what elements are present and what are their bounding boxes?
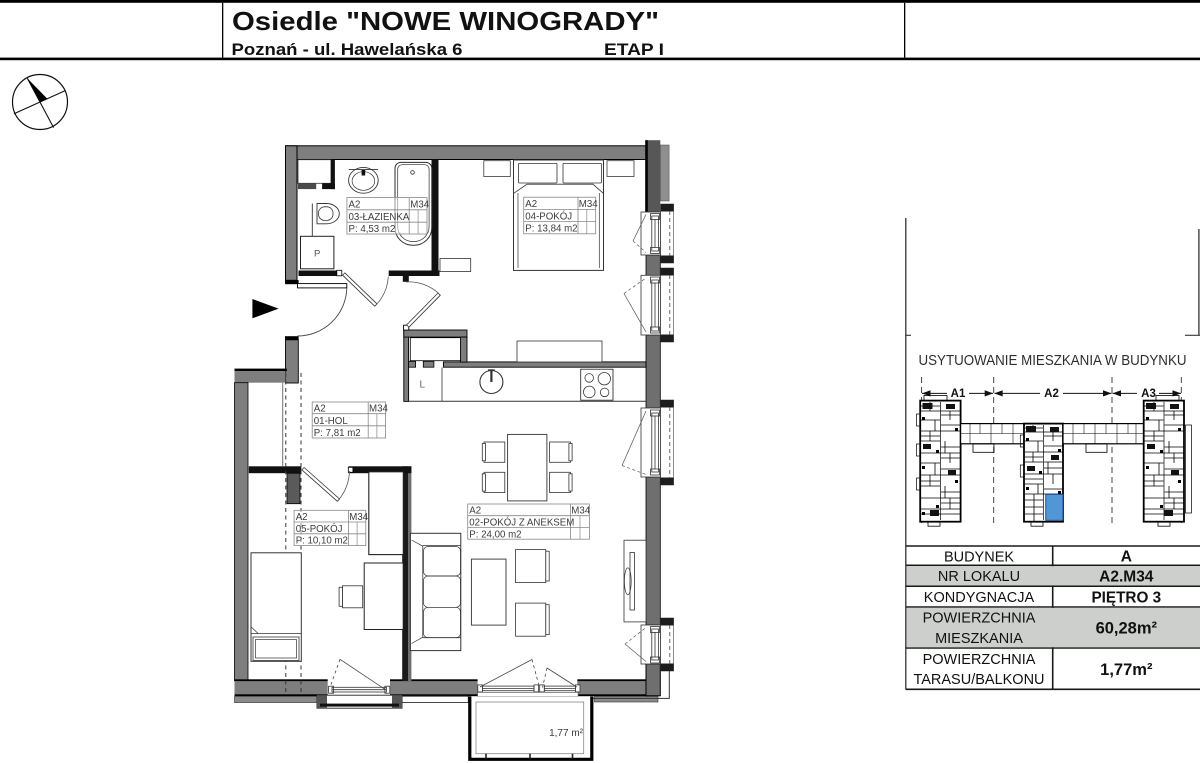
svg-text:M34: M34 <box>579 199 598 210</box>
svg-text:A: A <box>1121 549 1132 566</box>
svg-text:P: 24,00 m2: P: 24,00 m2 <box>469 529 521 540</box>
svg-text:03-ŁAZIENKA: 03-ŁAZIENKA <box>349 212 410 223</box>
svg-text:P: 4,53 m2: P: 4,53 m2 <box>349 224 396 235</box>
svg-text:A2: A2 <box>525 199 537 210</box>
svg-text:Poznań - ul. Hawelańska 6: Poznań - ul. Hawelańska 6 <box>232 40 463 59</box>
svg-text:02-POKÓJ Z ANEKSEM: 02-POKÓJ Z ANEKSEM <box>469 518 574 529</box>
svg-text:M34: M34 <box>410 200 429 211</box>
svg-text:M34: M34 <box>349 512 368 523</box>
svg-text:POWIERZCHNIA: POWIERZCHNIA <box>923 652 1036 668</box>
svg-text:60,28m²: 60,28m² <box>1096 620 1158 638</box>
svg-text:A2: A2 <box>296 512 308 523</box>
svg-text:1,77m²: 1,77m² <box>1100 661 1153 679</box>
svg-text:MIESZKANIA: MIESZKANIA <box>935 631 1023 647</box>
svg-text:P: P <box>314 249 320 260</box>
svg-text:A3: A3 <box>1141 388 1156 400</box>
svg-text:P: 13,84 m2: P: 13,84 m2 <box>525 224 577 235</box>
svg-text:USYTUOWANIE MIESZKANIA W BUDYN: USYTUOWANIE MIESZKANIA W BUDYNKU <box>919 352 1187 369</box>
svg-text:POWIERZCHNIA: POWIERZCHNIA <box>923 611 1036 627</box>
svg-text:A2: A2 <box>349 200 361 211</box>
svg-text:TARASU/BALKONU: TARASU/BALKONU <box>913 672 1044 688</box>
svg-text:NR LOKALU: NR LOKALU <box>938 569 1020 585</box>
svg-text:A2.M34: A2.M34 <box>1099 568 1154 585</box>
svg-text:A2: A2 <box>469 506 481 517</box>
svg-text:Osiedle "NOWE WINOGRADY": Osiedle "NOWE WINOGRADY" <box>232 6 659 36</box>
svg-text:KONDYGNACJA: KONDYGNACJA <box>924 590 1035 606</box>
svg-text:01-HOL: 01-HOL <box>314 416 349 427</box>
svg-text:1,77 m²: 1,77 m² <box>549 728 584 739</box>
svg-text:L: L <box>420 380 426 391</box>
svg-text:ETAP I: ETAP I <box>604 40 664 59</box>
svg-text:M34: M34 <box>369 404 388 415</box>
svg-text:BUDYNEK: BUDYNEK <box>944 549 1014 565</box>
svg-text:A2: A2 <box>314 404 326 415</box>
svg-text:A1: A1 <box>951 388 966 400</box>
svg-text:M34: M34 <box>571 506 590 517</box>
svg-text:04-POKÓJ: 04-POKÓJ <box>525 211 572 222</box>
svg-text:PIĘTRO 3: PIĘTRO 3 <box>1091 589 1161 606</box>
svg-text:05-POKÓJ: 05-POKÓJ <box>296 524 343 535</box>
svg-text:P: 7,81 m2: P: 7,81 m2 <box>314 428 361 439</box>
svg-text:A2: A2 <box>1044 388 1059 400</box>
svg-text:P: 10,10 m2: P: 10,10 m2 <box>296 536 348 547</box>
